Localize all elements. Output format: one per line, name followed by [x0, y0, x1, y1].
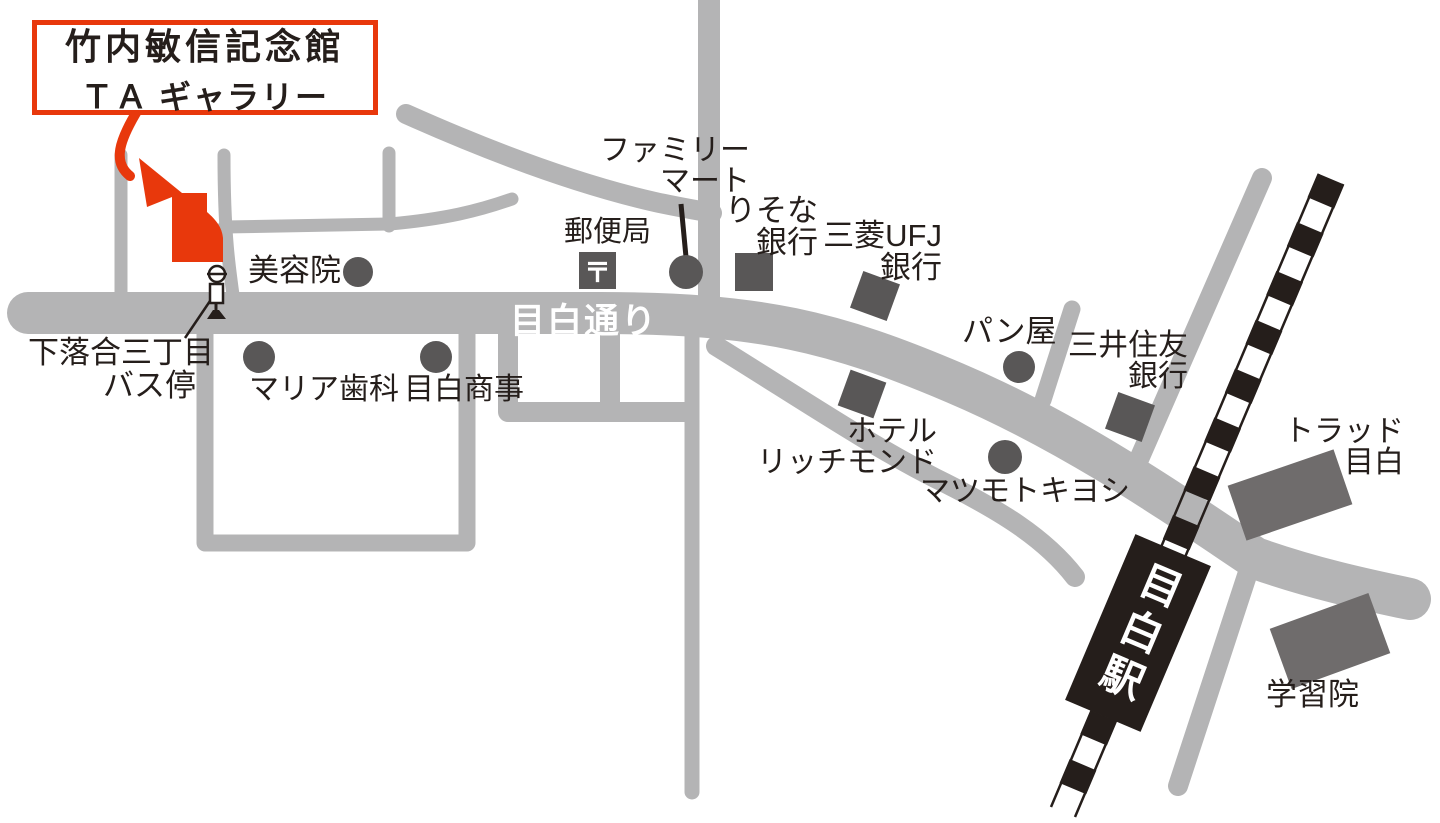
destination-title-box: 竹内敏信記念館 ＴＡ ギャラリー — [32, 20, 378, 115]
postal-mark-icon: 〒 — [579, 252, 616, 289]
bus-stop-label: 下落合三丁目 バス停 — [28, 336, 196, 402]
smbc-bank-label: 三井住友 銀行 — [1040, 330, 1188, 392]
hotel-richmond-label: ホテル リッチモンド — [740, 416, 937, 478]
map-canvas — [0, 0, 1440, 823]
gakushuin-building — [1270, 593, 1391, 689]
maria-dental-marker — [243, 341, 275, 373]
beauty-salon-label: 美容院 — [248, 255, 341, 287]
familymart-marker — [669, 255, 703, 289]
hotel-richmond-label-line2: リッチモンド — [740, 447, 937, 478]
smbc-bank-label-line2: 銀行 — [1040, 361, 1188, 392]
mejiro-shoji-label: 目白商事 — [404, 374, 524, 405]
post-office-label: 郵便局 — [564, 217, 651, 247]
hotel-richmond-marker — [838, 370, 887, 419]
road-along-rail-north — [1133, 178, 1262, 473]
trad-mejiro-label-line1: トラッド — [1258, 416, 1404, 447]
matsumoto-kiyoshi-label: マツモトキヨシ — [920, 476, 1130, 507]
mejiro-shoji-marker — [420, 341, 452, 373]
destination-gallery-name: ＴＡ ギャラリー — [81, 72, 329, 118]
mufg-bank-label-line1: 三菱UFJ — [800, 220, 942, 252]
familymart-label: ファミリー マート — [600, 135, 750, 197]
road-salon-back-street — [224, 199, 512, 227]
smbc-bank-label-line1: 三井住友 — [1040, 330, 1188, 361]
bus-stop-label-line2: バス停 — [28, 369, 196, 402]
mufg-bank-label-line2: 銀行 — [800, 252, 942, 284]
hotel-richmond-label-line1: ホテル — [740, 416, 937, 447]
gakushuin-label: 学習院 — [1266, 679, 1359, 711]
gallery-building — [172, 193, 223, 262]
trad-mejiro-label-line2: 目白 — [1258, 447, 1404, 478]
bakery-marker — [1003, 351, 1035, 383]
beauty-salon-marker — [343, 257, 373, 287]
bus-stop-post-board — [210, 284, 223, 303]
maria-dental-label: マリア歯科 — [249, 374, 399, 405]
matsumoto-kiyoshi-marker — [988, 440, 1022, 474]
access-map: 竹内敏信記念館 ＴＡ ギャラリー 目白通り 〒 目白駅 美容院 郵便局 ファミリ… — [0, 0, 1440, 823]
destination-name: 竹内敏信記念館 — [65, 18, 345, 70]
mejiro-dori-label: 目白通り — [510, 293, 658, 344]
road-vertical-gallery — [224, 155, 236, 316]
trad-mejiro-label: トラッド 目白 — [1258, 416, 1404, 478]
bus-stop-label-line1: 下落合三丁目 — [28, 336, 196, 369]
mufg-bank-label: 三菱UFJ 銀行 — [800, 220, 942, 284]
arrow-shaft — [120, 113, 136, 176]
familymart-label-line1: ファミリー — [600, 135, 750, 166]
